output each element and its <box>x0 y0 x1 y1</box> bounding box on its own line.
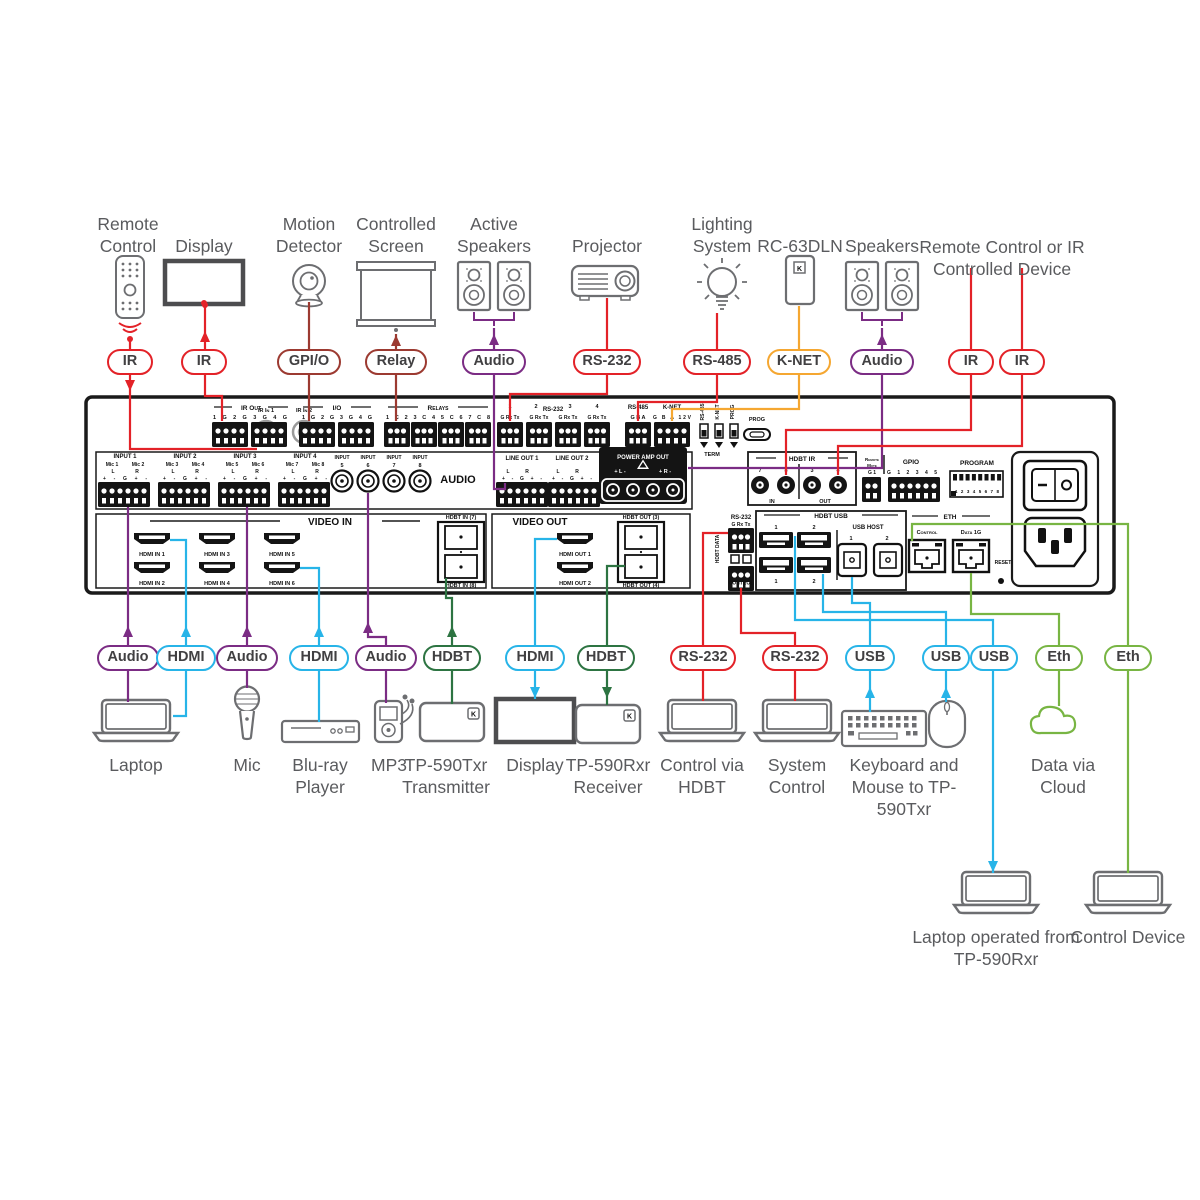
usb-host-2-label: 2 <box>885 536 888 542</box>
rs485-terminal <box>625 422 651 447</box>
svg-text:R: R <box>575 469 579 475</box>
badge-hdmi-display: HDMI <box>505 645 565 671</box>
label-relays: Relays <box>428 405 450 412</box>
rs232-terminal-4 <box>584 422 610 447</box>
rs232-terminal-3 <box>555 422 581 447</box>
rs232-num-3: 3 <box>568 404 571 410</box>
label-active-speakers: Active Speakers <box>448 213 540 257</box>
badge-ir-display: IR <box>181 349 227 375</box>
remote-mute-terminal <box>862 477 881 502</box>
svg-text:HDMI IN 1: HDMI IN 1 <box>139 552 165 558</box>
svg-text:R: R <box>315 469 319 475</box>
svg-text:INPUT: INPUT <box>361 455 376 461</box>
hdmi-in-4-port <box>199 562 235 573</box>
hdmi-in-5-port <box>264 533 300 544</box>
svg-text:Mic 7: Mic 7 <box>286 462 299 468</box>
io-terminal-1 <box>299 422 335 447</box>
svg-text:INPUT: INPUT <box>387 455 402 461</box>
svg-text:Mic 1: Mic 1 <box>106 462 119 468</box>
label-hdbt-ir: HDBT IR <box>789 456 816 463</box>
label-mic: Mic <box>207 754 287 776</box>
bluray-player-icon <box>282 721 359 742</box>
laptop-icon <box>94 700 178 741</box>
reset-button <box>998 578 1004 584</box>
hdbt-usb-1-bottom-label: 1 <box>774 579 777 585</box>
badge-ir-device-1: IR <box>948 349 994 375</box>
svg-text:HDMI IN 2: HDMI IN 2 <box>139 581 165 587</box>
badge-rs232-system: RS-232 <box>762 645 828 671</box>
label-hdbt-data: HDBT DATA <box>715 534 721 563</box>
power-switch <box>1024 461 1086 510</box>
svg-text:INPUT 2: INPUT 2 <box>173 454 197 460</box>
svg-text:L: L <box>556 469 559 475</box>
svg-text:L: L <box>111 469 114 475</box>
cloud-icon <box>1031 707 1075 733</box>
rear-panel: IR In 1 IR In 2 IR Out 1 G 2 G 3 G 4 G I… <box>86 397 1114 593</box>
mouse-icon <box>929 701 965 747</box>
svg-text:L: L <box>171 469 174 475</box>
svg-text:Mic 6: Mic 6 <box>252 462 265 468</box>
badge-eth-cloud: Eth <box>1035 645 1083 671</box>
badge-audio-mp3: Audio <box>355 645 417 671</box>
svg-text:5: 5 <box>340 463 343 469</box>
power-amp-out: POWER AMP OUT + L - + R - <box>599 447 687 504</box>
io-pins: 1 G 2 G 3 G 4 G <box>302 415 372 421</box>
badge-rs232-hdbt: RS-232 <box>670 645 736 671</box>
label-control-via-hdbt: Control via HDBT <box>646 754 758 798</box>
label-keyboard-mouse: Keyboard and Mouse to TP-590Txr <box>838 754 970 821</box>
label-control-device: Control Device <box>1063 926 1193 948</box>
badge-usb-keyboard: USB <box>845 645 895 671</box>
label-tp590txr: TP-590Txr Transmitter <box>391 754 501 798</box>
svg-text:+ - G + -: + - G + - <box>552 476 592 482</box>
label-usb-host: USB HOST <box>852 525 883 531</box>
hdmi-in-6-port <box>264 562 300 573</box>
label-sw-rs485: RS-485 <box>700 403 706 420</box>
prog-usb-port <box>744 429 770 440</box>
active-speakers-icon <box>458 262 530 326</box>
hdbt-ir-jack-7 <box>751 476 769 494</box>
keyboard-icon <box>842 711 926 746</box>
usb-host-port-2 <box>874 544 902 576</box>
rs232-pins-2: G Rx Tx <box>530 415 549 421</box>
svg-text:HDMI IN 6: HDMI IN 6 <box>269 581 295 587</box>
control-device-laptop-icon <box>1086 872 1170 913</box>
hdbt-ir-jack-4 <box>829 476 847 494</box>
label-prog: PROG <box>749 417 765 423</box>
motion-detector-icon <box>293 265 325 306</box>
label-control-terminal: CONTROL <box>729 581 754 587</box>
svg-text:+ R -: + R - <box>659 469 671 475</box>
label-eth-data-1g: Data 1G <box>961 530 981 536</box>
svg-text:7: 7 <box>392 463 395 469</box>
badge-gpio: GPI/O <box>277 349 341 375</box>
hdmi-out-1-port <box>557 533 593 544</box>
label-system-control: System Control <box>752 754 842 798</box>
badge-audio-speakers: Audio <box>850 349 914 375</box>
badge-ir-remote: IR <box>107 349 153 375</box>
rs232-pins-4: G Rx Tx <box>588 415 607 421</box>
label-controlled-screen: Controlled Screen <box>346 213 446 257</box>
hd-rs232-pins: G Rx Tx <box>732 522 751 528</box>
tp590txr-icon <box>420 703 484 741</box>
diagram-stage: K K K IR In 1 IR In 2 IR Out 1 G 2 G 3 G… <box>0 0 1200 1200</box>
label-sw-prog: PROG <box>730 405 736 420</box>
relay-terminal-2 <box>411 422 437 447</box>
label-line-out-1: LINE OUT 1 <box>505 456 539 462</box>
lighting-system-icon <box>697 258 747 309</box>
hdbt-ir-jack-3 <box>803 476 821 494</box>
hdbt-usb-2-bottom-label: 2 <box>812 579 815 585</box>
control-via-hdbt-laptop-icon <box>660 700 744 741</box>
svg-text:R: R <box>195 469 199 475</box>
diagram-canvas: K K K IR In 1 IR In 2 IR Out 1 G 2 G 3 G… <box>0 0 1200 1200</box>
hdbt-usb-2-top-label: 2 <box>812 525 815 531</box>
hdbt-usb-port-1-top <box>759 532 793 548</box>
usb-host-1-label: 1 <box>849 536 852 542</box>
badge-rs232-projector: RS-232 <box>573 349 641 375</box>
line-out-1-terminal <box>496 482 548 507</box>
rc-63dln-icon <box>786 256 814 304</box>
label-hdbt-out-4: HDBT OUT (4) <box>623 583 660 589</box>
svg-text:+ - G + -: + - G + - <box>103 476 147 482</box>
hdbt-out-ports <box>618 522 664 582</box>
svg-text:+ - G + -: + - G + - <box>283 476 327 482</box>
svg-text:INPUT 3: INPUT 3 <box>233 454 257 460</box>
svg-text:INPUT 1: INPUT 1 <box>113 454 137 460</box>
input5-rca-jack <box>332 471 353 492</box>
label-hdbt-in-7: HDBT IN (7) <box>446 515 477 521</box>
rc-k-logo: K <box>797 266 802 273</box>
badge-audio-active-spk: Audio <box>462 349 526 375</box>
display-icon <box>165 261 243 306</box>
relay-terminal-1 <box>384 422 410 447</box>
badge-relay: Relay <box>365 349 427 375</box>
svg-text:Mic 4: Mic 4 <box>192 462 205 468</box>
input2-terminal <box>158 482 210 507</box>
label-ir-device: Remote Control or IR Controlled Device <box>919 236 1085 280</box>
svg-text:R: R <box>525 469 529 475</box>
hdbt-usb-1-top-label: 1 <box>774 525 777 531</box>
ir-out-pins: 1 G 2 G 3 G 4 G <box>213 415 287 421</box>
label-laptop-rxr: Laptop operated from TP-590Rxr <box>910 926 1082 970</box>
svg-text:INPUT: INPUT <box>413 455 428 461</box>
input3-terminal <box>218 482 270 507</box>
badge-audio-laptop: Audio <box>97 645 159 671</box>
label-sw-knet: K-NET <box>715 404 721 419</box>
term-switches <box>700 424 738 448</box>
hdbt-ir-jack-8 <box>777 476 795 494</box>
input6-rca-jack <box>358 471 379 492</box>
svg-text:Mic 2: Mic 2 <box>132 462 145 468</box>
relays-pins: 1 C 2 3 C 4 5 C 6 7 C 8 <box>386 415 490 421</box>
label-hdbt-ir-out: OUT <box>819 499 831 505</box>
svg-text:L: L <box>506 469 509 475</box>
label-audio-section: AUDIO <box>440 474 476 486</box>
mic-icon <box>235 687 259 740</box>
cable-hdbt-txr <box>446 578 452 704</box>
hdmi-in-3-port <box>199 533 235 544</box>
badge-usb-laptop: USB <box>970 645 1018 671</box>
rxr-k-logo: K <box>627 714 632 721</box>
badge-audio-mic: Audio <box>216 645 278 671</box>
line-out-2-terminal <box>548 482 600 507</box>
svg-text:INPUT: INPUT <box>335 455 350 461</box>
svg-text:+ - G + -: + - G + - <box>502 476 542 482</box>
badge-hdmi-laptop: HDMI <box>156 645 216 671</box>
label-laptop: Laptop <box>96 754 176 776</box>
badge-rs485: RS-485 <box>683 349 751 375</box>
ir-out-terminal-2 <box>251 422 287 447</box>
badge-usb-mouse: USB <box>922 645 970 671</box>
relay-terminal-4 <box>465 422 491 447</box>
control-terminal <box>728 566 754 591</box>
eth-data-1g-port <box>953 540 989 572</box>
label-hdmi-out-2: HDMI OUT 2 <box>559 581 591 587</box>
hdmi-out-2-port <box>557 562 593 573</box>
rs232-terminal-2 <box>526 422 552 447</box>
svg-text:+ - G + -: + - G + - <box>223 476 267 482</box>
system-control-laptop-icon <box>755 700 839 741</box>
svg-text:8: 8 <box>418 463 421 469</box>
label-speakers: Speakers <box>832 235 932 257</box>
input1-terminal <box>98 482 150 507</box>
label-data-via-cloud: Data via Cloud <box>1017 754 1109 798</box>
mp3-player-icon <box>375 695 415 743</box>
badge-hdmi-bluray: HDMI <box>289 645 349 671</box>
label-video-out: VIDEO OUT <box>512 517 567 528</box>
remote-control-icon <box>116 256 144 318</box>
label-bluray: Blu-ray Player <box>279 754 361 798</box>
rs232-pins-3: G Rx Tx <box>559 415 578 421</box>
svg-text:L: L <box>291 469 294 475</box>
label-ir-out: IR Out <box>241 405 261 412</box>
hdbt-in-ports <box>438 522 484 582</box>
badge-hdbt-rxr: HDBT <box>577 645 635 671</box>
input7-rca-jack <box>384 471 405 492</box>
label-hdmi-out-1: HDMI OUT 1 <box>559 552 591 558</box>
controlled-screen-icon <box>357 262 435 332</box>
hdbt-data-terminal <box>728 528 754 553</box>
hdbt-usb-port-2-bottom <box>797 557 831 573</box>
svg-text:+ L -: + L - <box>614 469 626 475</box>
label-line-out-2: LINE OUT 2 <box>555 456 589 462</box>
svg-text:INPUT 4: INPUT 4 <box>293 454 317 460</box>
usb-host-port-1 <box>838 544 866 576</box>
label-program: PROGRAM <box>960 460 994 467</box>
gpio-pins: G 1 2 3 4 5 <box>887 470 937 476</box>
power-socket <box>1025 518 1085 566</box>
label-hdbt-ir-in: IN <box>769 499 775 505</box>
hdbt-data-mid-1 <box>731 555 739 563</box>
rs232-terminal-1 <box>497 422 523 447</box>
badge-knet: K-NET <box>767 349 831 375</box>
label-motion-detector: Motion Detector <box>263 213 355 257</box>
label-reset: RESET <box>995 560 1012 566</box>
label-term: TERM <box>704 452 720 458</box>
knet-terminal <box>654 422 690 447</box>
label-hd-rs232: RS-232 <box>731 515 752 521</box>
label-hdbt-out-3: HDBT OUT (3) <box>623 515 660 521</box>
svg-text:Mic 8: Mic 8 <box>312 462 325 468</box>
input8-rca-jack <box>410 471 431 492</box>
speakers-icon <box>846 262 918 326</box>
hdmi-in-2-port <box>134 562 170 573</box>
relay-terminal-3 <box>438 422 464 447</box>
badge-ir-device-2: IR <box>999 349 1045 375</box>
gpio-terminal <box>888 477 940 502</box>
label-gpio: GPIO <box>903 459 919 466</box>
input4-terminal <box>278 482 330 507</box>
svg-text:R: R <box>255 469 259 475</box>
tp590rxr-icon <box>576 705 640 743</box>
svg-text:HDMI IN 5: HDMI IN 5 <box>269 552 295 558</box>
label-eth-control: Control <box>917 530 938 536</box>
display-bottom-icon <box>496 699 574 742</box>
rs232-num-2: 2 <box>534 404 537 410</box>
hdbt-data-mid-2 <box>743 555 751 563</box>
txr-k-logo: K <box>471 712 476 719</box>
badge-eth-control: Eth <box>1104 645 1152 671</box>
svg-text:HDMI IN 3: HDMI IN 3 <box>204 552 230 558</box>
svg-text:Mic 3: Mic 3 <box>166 462 179 468</box>
remote-mute-pins: G 1 <box>868 470 876 476</box>
hdbt-usb-port-2-top <box>797 532 831 548</box>
label-rs232: RS-232 <box>543 407 564 413</box>
ir-out-terminal-1 <box>212 422 248 447</box>
label-io: I/O <box>333 405 342 412</box>
eth-control-port <box>909 540 945 572</box>
io-terminal-2 <box>338 422 374 447</box>
badge-hdbt-txr: HDBT <box>423 645 481 671</box>
svg-text:Mic 5: Mic 5 <box>226 462 239 468</box>
label-hdbt-usb: HDBT USB <box>814 513 848 520</box>
svg-text:L: L <box>231 469 234 475</box>
program-pins: 1 2 3 4 5 6 7 8 <box>955 489 999 494</box>
svg-text:6: 6 <box>366 463 369 469</box>
label-eth: ETH <box>944 514 957 521</box>
label-video-in: VIDEO IN <box>308 517 352 528</box>
projector-icon <box>572 266 638 300</box>
label-display-top: Display <box>159 235 249 257</box>
svg-text:+ - G + -: + - G + - <box>163 476 207 482</box>
hdbt-usb-port-1-bottom <box>759 557 793 573</box>
laptop-tp590rxr-icon <box>954 872 1038 913</box>
svg-text:HDMI IN 4: HDMI IN 4 <box>204 581 231 587</box>
svg-text:R: R <box>135 469 139 475</box>
label-projector: Projector <box>557 235 657 257</box>
hdmi-in-1-port <box>134 533 170 544</box>
label-remote: Remote <box>865 457 879 462</box>
label-hdbt-in-8: HDBT IN (8) <box>446 583 477 589</box>
